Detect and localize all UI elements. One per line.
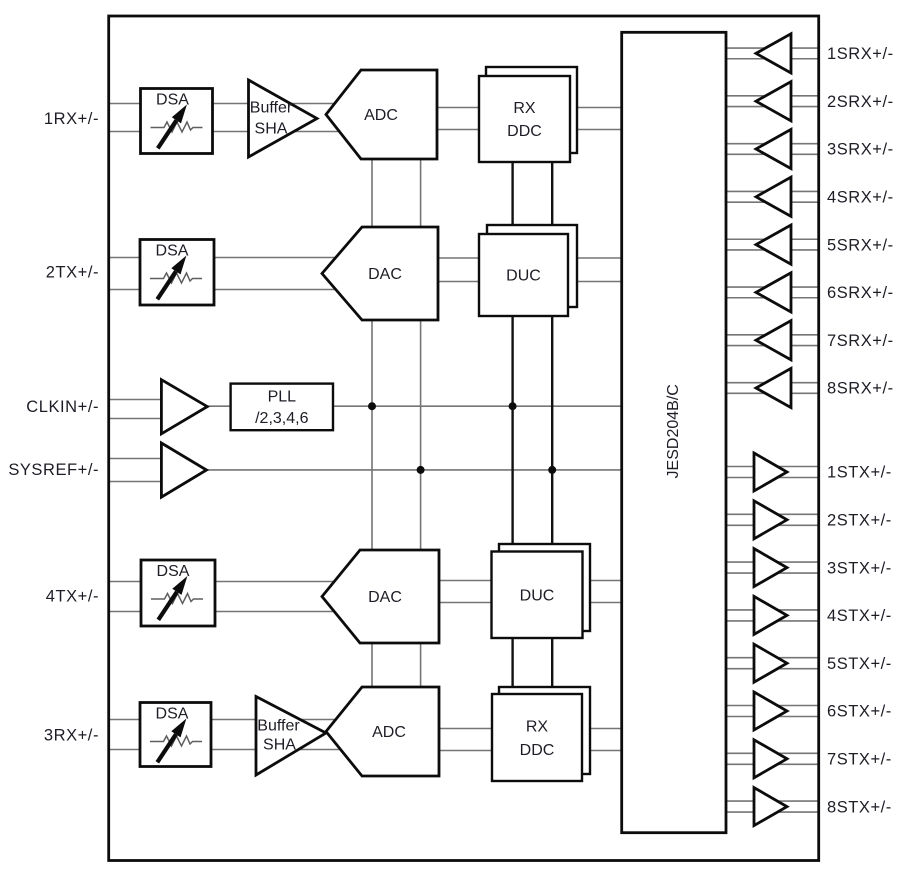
svg-text:RX: RX	[526, 719, 549, 736]
svg-text:RX: RX	[513, 100, 536, 117]
svg-text:3STX+/-: 3STX+/-	[827, 559, 892, 577]
svg-text:6STX+/-: 6STX+/-	[827, 703, 892, 721]
svg-text:JESD204B/C: JESD204B/C	[665, 384, 682, 478]
svg-text:1RX+/-: 1RX+/-	[44, 110, 99, 128]
svg-text:7SRX+/-: 7SRX+/-	[827, 332, 894, 350]
svg-text:DUC: DUC	[506, 267, 541, 284]
svg-text:CLKIN+/-: CLKIN+/-	[26, 398, 99, 416]
svg-text:DSA: DSA	[156, 706, 189, 723]
svg-text:4TX+/-: 4TX+/-	[46, 588, 99, 606]
svg-text:4STX+/-: 4STX+/-	[827, 607, 892, 625]
svg-text:SHA: SHA	[263, 737, 296, 754]
svg-text:4SRX+/-: 4SRX+/-	[827, 189, 894, 207]
svg-text:2STX+/-: 2STX+/-	[827, 512, 892, 530]
svg-text:3SRX+/-: 3SRX+/-	[827, 141, 894, 159]
svg-text:ADC: ADC	[372, 724, 406, 741]
svg-text:1SRX+/-: 1SRX+/-	[827, 45, 894, 63]
svg-text:Buffer: Buffer	[257, 718, 300, 735]
svg-text:2SRX+/-: 2SRX+/-	[827, 93, 894, 111]
svg-text:6SRX+/-: 6SRX+/-	[827, 284, 894, 302]
svg-text:7STX+/-: 7STX+/-	[827, 751, 892, 769]
svg-text:1STX+/-: 1STX+/-	[827, 464, 892, 482]
svg-text:DSA: DSA	[157, 563, 190, 580]
svg-text:/2,3,4,6: /2,3,4,6	[255, 410, 308, 427]
svg-text:SYSREF+/-: SYSREF+/-	[8, 461, 99, 479]
svg-text:5SRX+/-: 5SRX+/-	[827, 236, 894, 254]
svg-text:DAC: DAC	[368, 589, 402, 606]
svg-text:SHA: SHA	[255, 121, 288, 138]
svg-text:DDC: DDC	[520, 742, 555, 759]
svg-text:DSA: DSA	[156, 92, 189, 109]
svg-text:2TX+/-: 2TX+/-	[46, 264, 99, 282]
svg-text:Buffer: Buffer	[250, 100, 293, 117]
svg-text:DSA: DSA	[156, 243, 189, 260]
svg-text:ADC: ADC	[364, 107, 398, 124]
svg-text:3RX+/-: 3RX+/-	[44, 727, 99, 745]
svg-text:DDC: DDC	[507, 123, 542, 140]
svg-text:8SRX+/-: 8SRX+/-	[827, 380, 894, 398]
svg-text:8STX+/-: 8STX+/-	[827, 798, 892, 816]
svg-text:5STX+/-: 5STX+/-	[827, 655, 892, 673]
svg-text:DUC: DUC	[520, 588, 555, 605]
svg-text:DAC: DAC	[368, 266, 402, 283]
svg-text:PLL: PLL	[268, 389, 297, 406]
